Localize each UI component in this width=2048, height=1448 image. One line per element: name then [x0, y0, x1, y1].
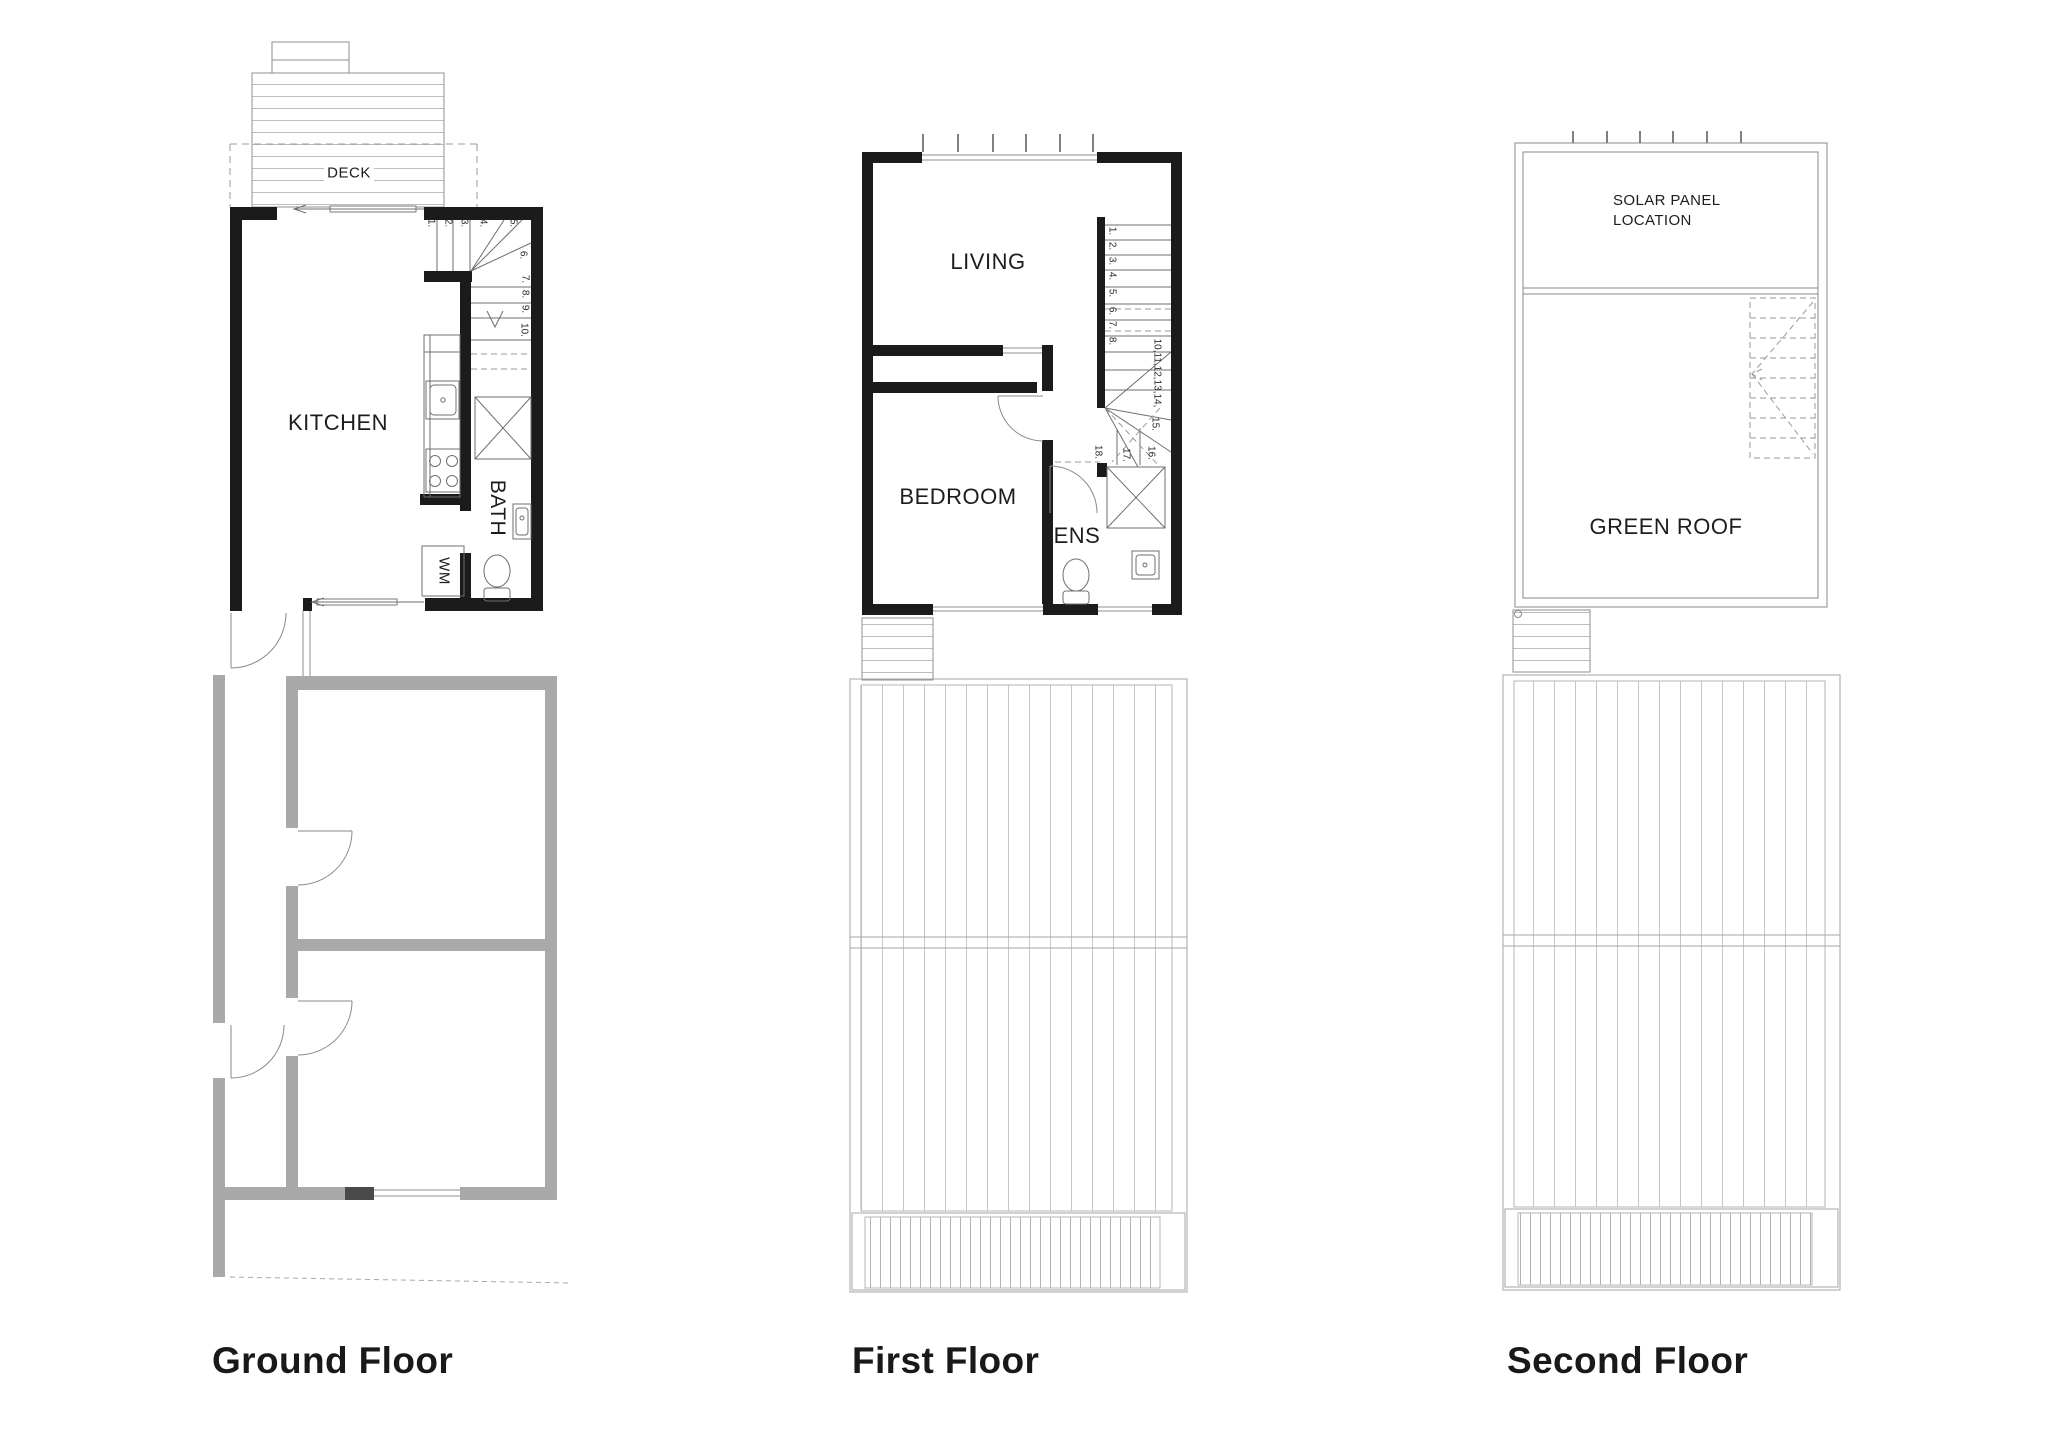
gf-stair-number: 8.: [520, 290, 531, 298]
living-label: LIVING: [950, 249, 1025, 275]
gf-stair-number: 2.: [443, 219, 454, 227]
ff-stair-number: 15.: [1150, 417, 1161, 431]
ff-stair-number: 18.: [1093, 445, 1104, 459]
ff-stair-number: 16.: [1146, 446, 1157, 460]
gf-stair-number: 4.: [478, 219, 489, 227]
floor-plans-drawing: [0, 0, 2048, 1448]
ground-floor-group: [213, 42, 570, 1283]
solar-panel-location-label: SOLAR PANEL LOCATION: [1613, 191, 1721, 231]
gf-stair-number: 5.: [508, 219, 519, 227]
ff-stair-number: 1.: [1107, 227, 1118, 235]
ff-stair-number: 17.: [1121, 448, 1132, 462]
gf-stair-number: 3.: [459, 219, 470, 227]
wm-label: WM: [436, 557, 453, 585]
deck-label: DECK: [324, 165, 374, 182]
bedroom-label: BEDROOM: [899, 484, 1016, 510]
ground-floor-title: Ground Floor: [212, 1340, 453, 1382]
ff-stair-number: 6.: [1107, 307, 1118, 315]
solar-panel-label-line1: SOLAR PANEL: [1613, 191, 1721, 211]
ff-stair-number: 2.: [1107, 242, 1118, 250]
solar-panel-label-line2: LOCATION: [1613, 211, 1721, 231]
second-floor-group: [1503, 131, 1840, 1290]
kitchen-label: KITCHEN: [288, 410, 388, 436]
ens-label: ENS: [1054, 523, 1101, 549]
first-floor-group: [850, 134, 1187, 1292]
gf-stair-number: 1.: [426, 219, 437, 227]
floor-plan-sheet: DECK KITCHEN BATH WM LIVING BEDROOM ENS …: [0, 0, 2048, 1448]
bath-label: BATH: [485, 480, 509, 536]
ff-stair-number: 4.: [1107, 272, 1118, 280]
ff-stair-number: 3.: [1107, 257, 1118, 265]
ff-stair-number: 7.: [1107, 321, 1118, 329]
green-roof-label: GREEN ROOF: [1590, 514, 1743, 540]
ff-stair-number: 5.: [1107, 289, 1118, 297]
gf-stair-number: 6.: [518, 251, 529, 259]
first-floor-title: First Floor: [852, 1340, 1039, 1382]
ff-stair-number: 8.: [1107, 337, 1118, 345]
second-floor-title: Second Floor: [1507, 1340, 1748, 1382]
gf-stair-number: 10.: [519, 323, 530, 337]
gf-stair-number: 7.: [520, 275, 531, 283]
ff-stair-mid-run-label: 10,11,12,13,14,: [1152, 339, 1163, 408]
gf-stair-number: 9.: [520, 305, 531, 313]
